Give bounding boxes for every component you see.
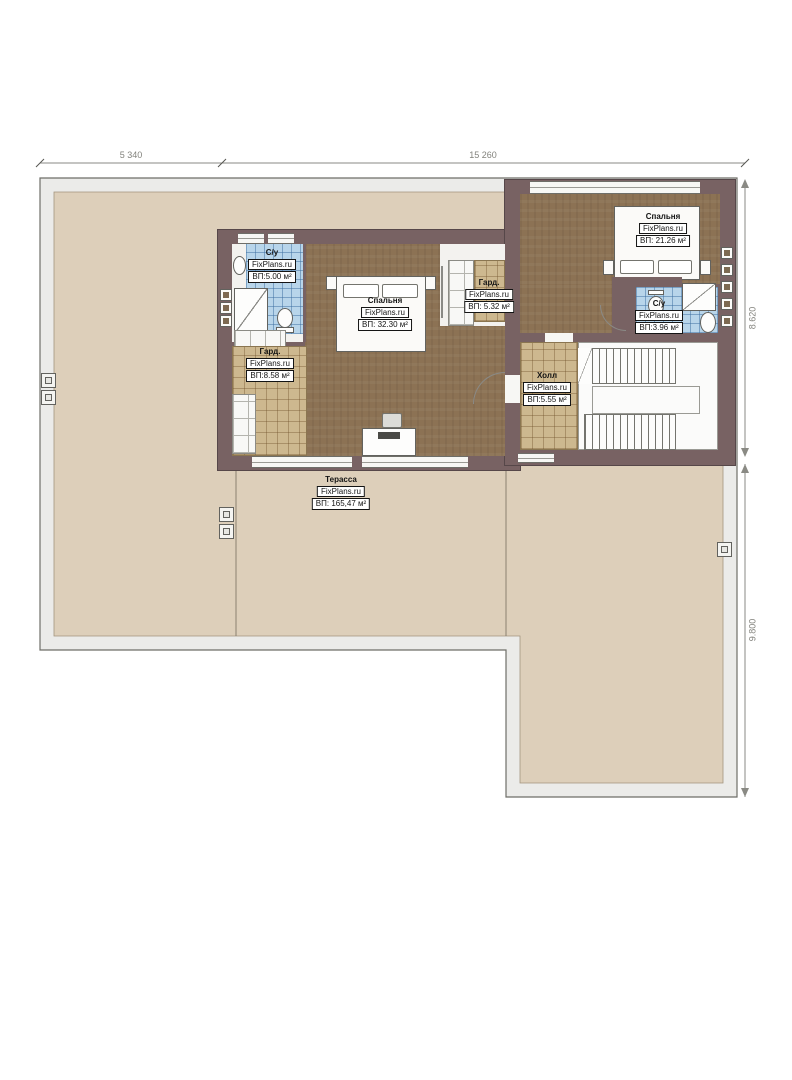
room-area: ВП:3.96 м² (635, 322, 682, 334)
toilet-tank-icon (648, 290, 664, 295)
wall-shelf-cell (721, 264, 733, 276)
wall-recess (238, 233, 264, 244)
dimension-arrow (741, 464, 749, 473)
room-label-terrace: Терасса FixPlans.ru ВП: 165,47 м² (312, 476, 370, 510)
dimension-arrow (741, 788, 749, 797)
room-label-bedroom-right: Спальня FixPlans.ru ВП: 21.26 м² (636, 213, 690, 247)
stairs-lower-flight (584, 414, 676, 450)
washbasin-icon (233, 256, 246, 275)
room-label-bath-left: С/у FixPlans.ru ВП:5.00 м² (248, 249, 296, 283)
hall-window (518, 453, 554, 463)
dimension-label-width-left: 5 340 (120, 151, 143, 160)
room-area: ВП:5.55 м² (523, 394, 570, 406)
stair-railing (592, 386, 700, 414)
interior-wall (612, 277, 682, 287)
door-opening (545, 333, 573, 342)
room-name: С/у (653, 300, 665, 309)
room-area: ВП: 21.26 м² (636, 235, 690, 247)
bedroom-right-window (530, 181, 700, 194)
plan-base-geometry (0, 0, 792, 1080)
washbasin-icon (700, 312, 716, 333)
wall-shelf-cell (220, 302, 232, 314)
room-name: Спальня (646, 213, 681, 222)
room-area: ВП: 5.32 м² (464, 301, 514, 313)
monitor-icon (378, 432, 400, 439)
toilet-icon (277, 308, 293, 328)
room-label-hall: Холл FixPlans.ru ВП:5.55 м² (523, 372, 571, 406)
wall-shelf-cell (220, 315, 232, 327)
room-name: С/у (266, 249, 278, 258)
shower-icon (234, 288, 268, 334)
pillow-icon (658, 260, 692, 274)
room-name: Гард. (260, 348, 281, 357)
nightstand-icon (603, 260, 614, 275)
terrace-post (41, 373, 56, 388)
room-name: Спальня (368, 297, 403, 306)
wall-shelf-cell (721, 281, 733, 293)
wall-recess (268, 233, 294, 244)
watermark-fixplans: FixPlans.ru (635, 310, 683, 322)
wall-shelf-cell (220, 289, 232, 301)
wall-shelf-cell (721, 247, 733, 259)
room-area: ВП:8.58 м² (246, 370, 293, 382)
watermark-fixplans: FixPlans.ru (246, 358, 294, 370)
watermark-fixplans: FixPlans.ru (523, 382, 571, 394)
bedroom-right-floor-ext (520, 284, 612, 333)
room-name: Гард. (479, 279, 500, 288)
wall-shelf-cell (721, 298, 733, 310)
pillow-icon (620, 260, 654, 274)
dimension-arrow (741, 448, 749, 457)
closet-cells (232, 394, 256, 454)
room-label-wardrobe-small: Гард. FixPlans.ru ВП: 5.32 м² (464, 279, 514, 313)
sliding-door-track (441, 266, 443, 318)
terrace-post (41, 390, 56, 405)
room-area: ВП:5.00 м² (248, 271, 295, 283)
wall-shelf-cell (721, 315, 733, 327)
watermark-fixplans: FixPlans.ru (639, 223, 687, 235)
room-name: Терасса (325, 476, 357, 485)
watermark-fixplans: FixPlans.ru (361, 307, 409, 319)
dimension-label-width-right: 15 260 (469, 151, 497, 160)
bath-left-partition (303, 244, 306, 342)
watermark-fixplans: FixPlans.ru (317, 486, 365, 498)
shower-icon (682, 283, 716, 311)
watermark-fixplans: FixPlans.ru (248, 259, 296, 271)
room-label-bedroom-main: Спальня FixPlans.ru ВП: 32.30 м² (358, 297, 412, 331)
room-label-bath-right: С/у FixPlans.ru ВП:3.96 м² (635, 300, 683, 334)
terrace-post (717, 542, 732, 557)
window-pier (352, 456, 362, 468)
floor-plan-canvas: 5 340 15 260 8.620 9.800 (0, 0, 792, 1080)
nightstand-icon (700, 260, 711, 275)
nightstand-icon (326, 276, 337, 290)
nightstand-icon (425, 276, 436, 290)
room-label-wardrobe-large: Гард. FixPlans.ru ВП:8.58 м² (246, 348, 294, 382)
terrace-post (219, 524, 234, 539)
room-area: ВП: 32.30 м² (358, 319, 412, 331)
watermark-fixplans: FixPlans.ru (465, 289, 513, 301)
chair-icon (382, 413, 402, 428)
room-area: ВП: 165,47 м² (312, 498, 370, 510)
room-name: Холл (537, 372, 557, 381)
door-opening (505, 375, 520, 403)
dimension-label-height-upper: 8.620 (749, 307, 758, 330)
terrace-post (219, 507, 234, 522)
stairs-upper-flight (584, 348, 676, 384)
dimension-arrow (741, 179, 749, 188)
dimension-label-height-lower: 9.800 (749, 619, 758, 642)
stair-winder-mark (578, 348, 592, 384)
